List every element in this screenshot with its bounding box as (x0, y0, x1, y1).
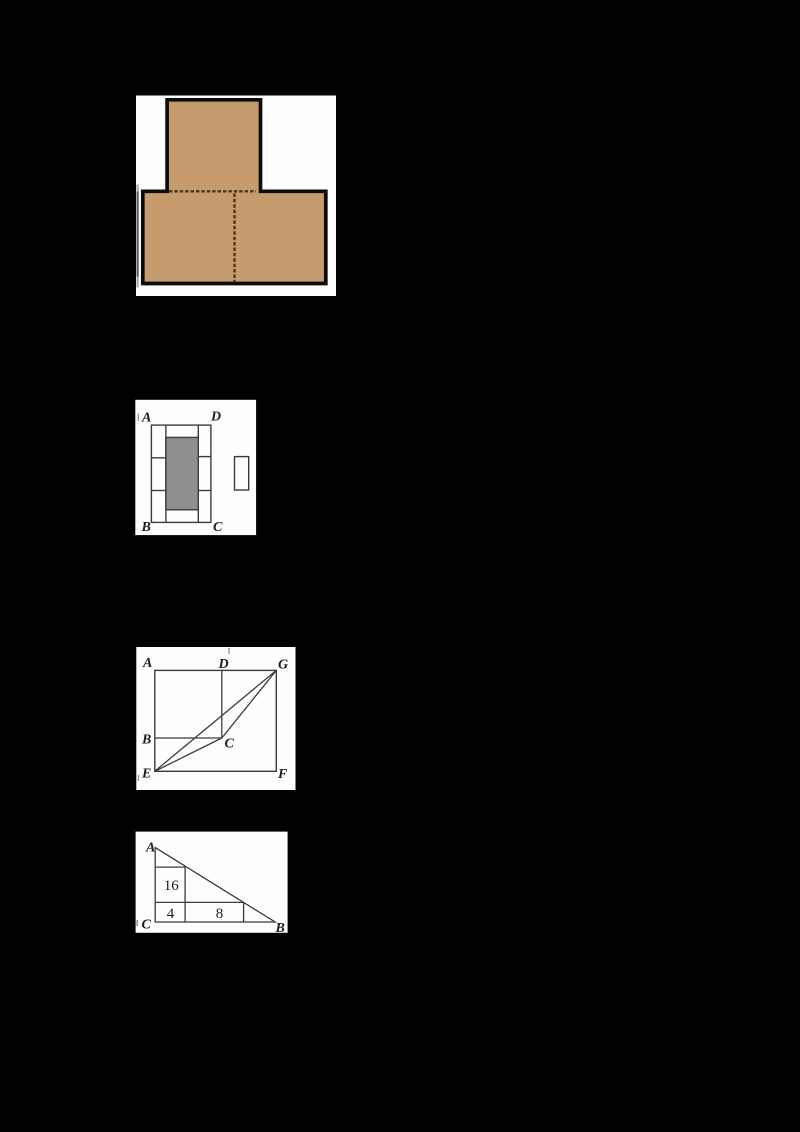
svg-text:C: C (213, 520, 223, 535)
svg-text:4: 4 (167, 906, 175, 922)
svg-text:A: A (141, 410, 151, 425)
svg-text:D: D (210, 409, 221, 424)
svg-text:D: D (218, 657, 229, 672)
svg-text:A: A (145, 841, 155, 856)
svg-text:16: 16 (164, 878, 180, 894)
svg-text:C: C (225, 737, 235, 752)
svg-text:G: G (278, 658, 288, 673)
svg-text:B: B (141, 520, 151, 535)
svg-text:C: C (142, 918, 152, 933)
svg-text:B: B (275, 921, 285, 936)
svg-text:E: E (141, 767, 151, 782)
svg-text:F: F (277, 767, 288, 782)
svg-text:B: B (141, 733, 151, 748)
svg-text:A: A (142, 656, 152, 671)
svg-text:8: 8 (216, 906, 224, 922)
